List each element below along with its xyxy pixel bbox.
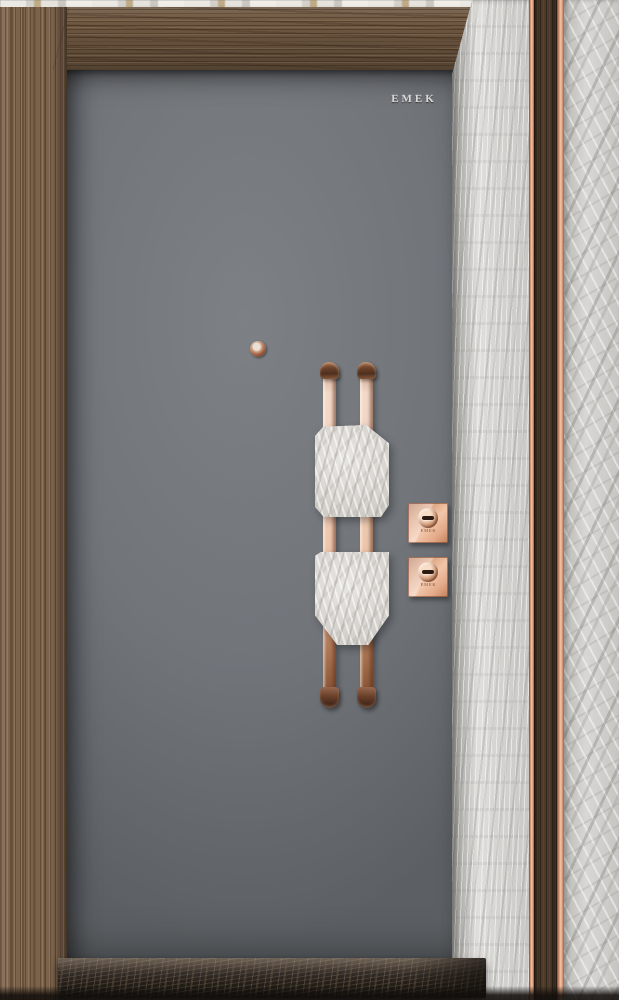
door-frame-left-jamb bbox=[0, 7, 67, 1000]
lock-escutcheon-bottom: EMEK bbox=[408, 557, 448, 597]
marble-plate-surface bbox=[315, 552, 389, 645]
keyhole-slot bbox=[422, 516, 434, 520]
frame-miter-joint bbox=[53, 7, 69, 70]
door-frame-head bbox=[58, 7, 472, 70]
keyhole-icon bbox=[418, 562, 438, 582]
handle-bar-left bbox=[323, 367, 336, 700]
keyhole-slot bbox=[422, 570, 434, 574]
handle-bar-right bbox=[360, 367, 373, 700]
handle-hook-top-left bbox=[320, 362, 339, 379]
lock-escutcheon-top: EMEK bbox=[408, 503, 448, 543]
handle-marble-plate-bottom bbox=[315, 552, 389, 645]
copper-trim-strip-outer bbox=[557, 0, 564, 1000]
dark-wood-reveal-strip bbox=[534, 0, 557, 1000]
floor-shadow bbox=[0, 986, 619, 1000]
marble-pilaster bbox=[452, 0, 530, 1000]
peephole-icon bbox=[250, 341, 266, 357]
handle-marble-plate-top bbox=[315, 425, 389, 517]
handle-hook-bottom-left bbox=[320, 687, 339, 708]
brand-logo: EMEK bbox=[385, 92, 443, 107]
door-product-photo: EMEK EMEK EMEK bbox=[0, 0, 619, 1000]
marble-plate-surface bbox=[315, 425, 389, 517]
handle-hook-bottom-right bbox=[357, 687, 376, 708]
handle-hook-top-right bbox=[357, 362, 376, 379]
lock-brand-label: EMEK bbox=[420, 529, 436, 534]
keyhole-icon bbox=[418, 508, 438, 528]
marble-wall bbox=[564, 0, 619, 1000]
lock-brand-label: EMEK bbox=[420, 583, 436, 588]
door-panel bbox=[67, 66, 460, 965]
